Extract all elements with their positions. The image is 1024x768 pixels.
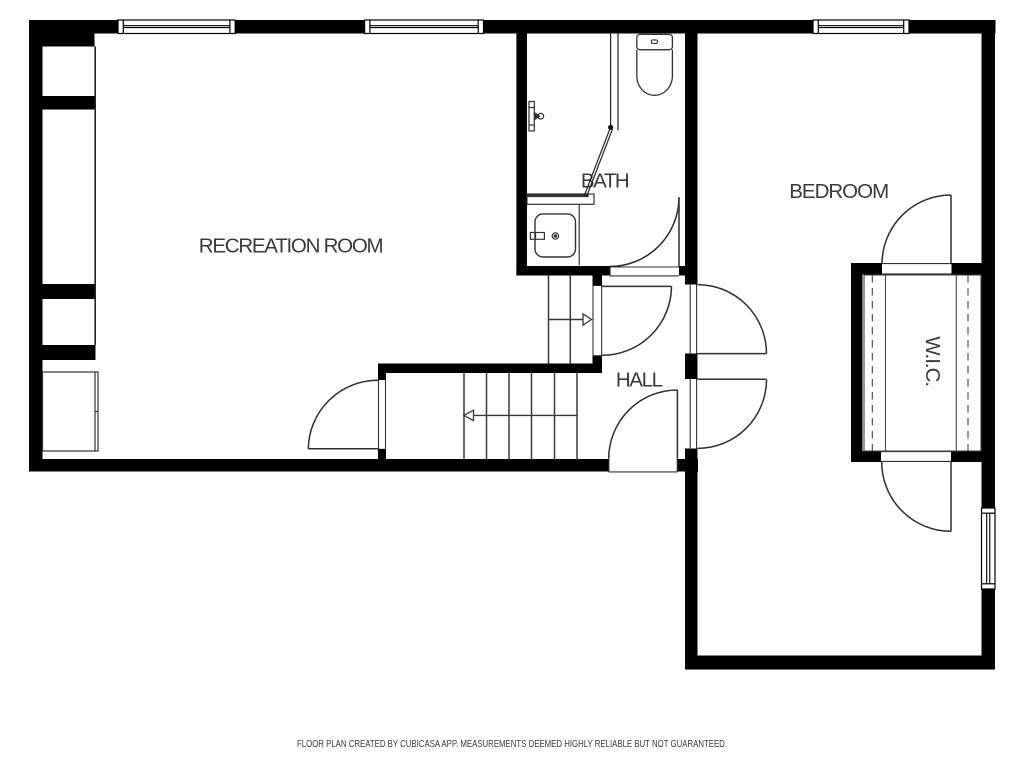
svg-text:BEDROOM: BEDROOM xyxy=(789,180,888,203)
svg-text:W.I.C.: W.I.C. xyxy=(921,336,944,386)
svg-text:BATH: BATH xyxy=(581,169,629,192)
svg-text:HALL: HALL xyxy=(616,368,663,391)
svg-text:RECREATION ROOM: RECREATION ROOM xyxy=(199,235,383,258)
svg-text:FLOOR PLAN CREATED BY CUBICASA: FLOOR PLAN CREATED BY CUBICASA APP. MEAS… xyxy=(297,738,727,750)
